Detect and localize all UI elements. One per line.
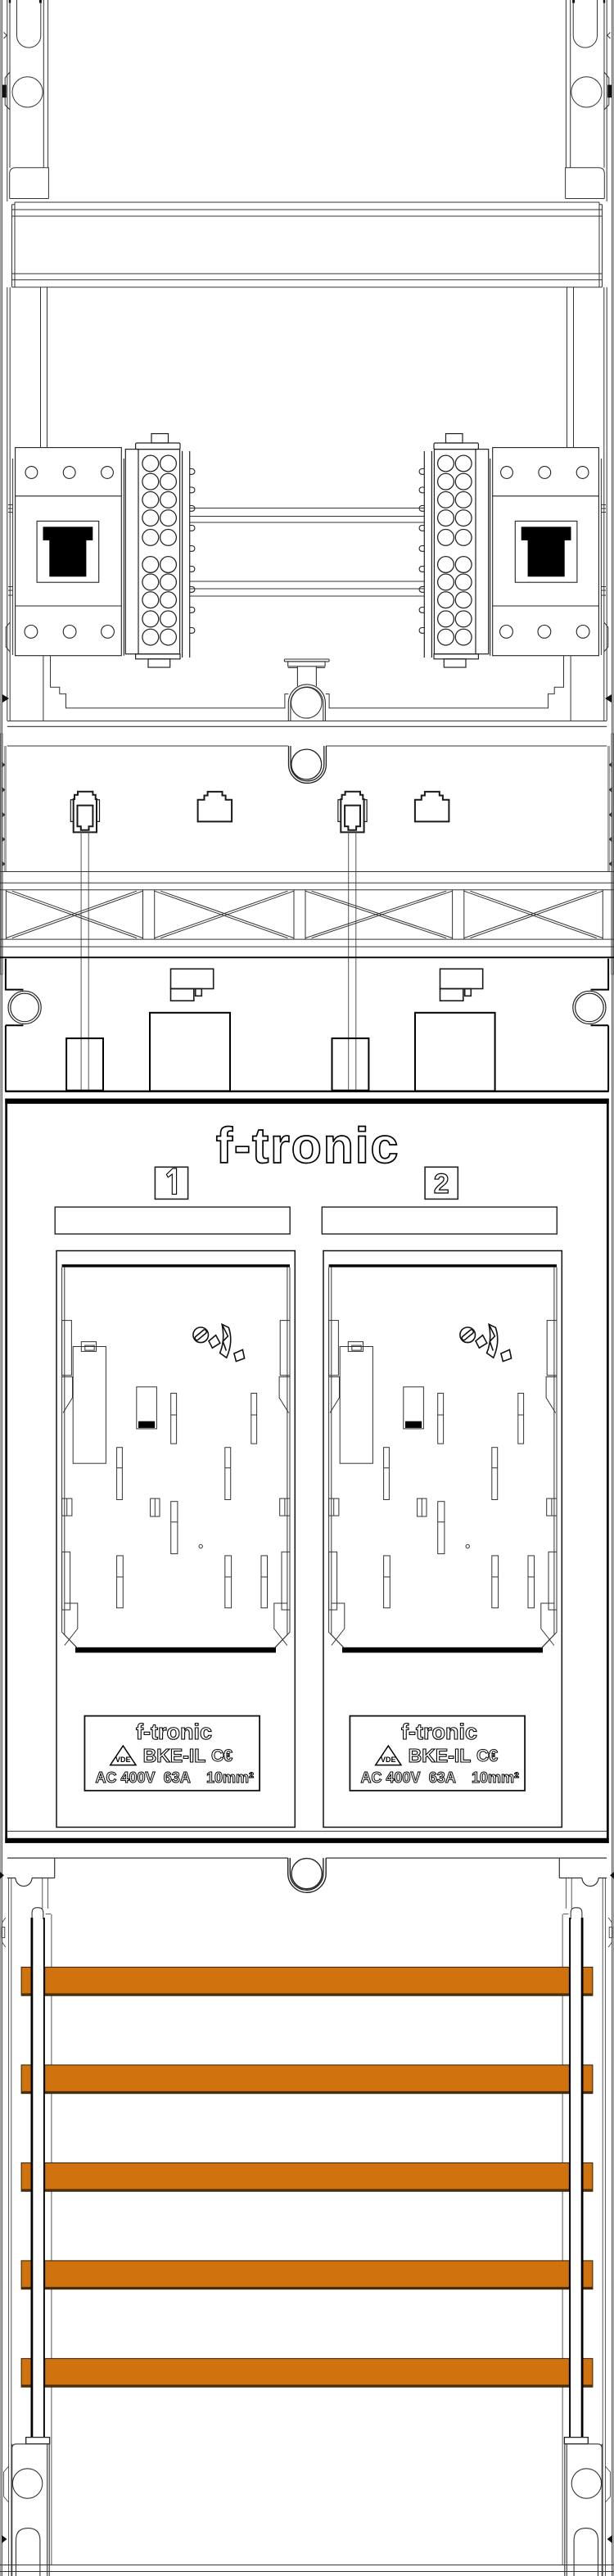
svg-text:€: € [223, 1747, 233, 1765]
svg-text:VDE: VDE [115, 1756, 131, 1764]
svg-text:f-tronic: f-tronic [216, 1118, 400, 1173]
svg-text:C: C [211, 1747, 223, 1765]
svg-text:BKE-IL: BKE-IL [143, 1745, 206, 1766]
svg-text:63A: 63A [164, 1769, 191, 1786]
svg-text:10mm²: 10mm² [206, 1769, 254, 1786]
svg-text:AC 400V: AC 400V [96, 1769, 156, 1786]
svg-text:2: 2 [434, 1168, 449, 1200]
svg-text:f-tronic: f-tronic [136, 1720, 212, 1744]
